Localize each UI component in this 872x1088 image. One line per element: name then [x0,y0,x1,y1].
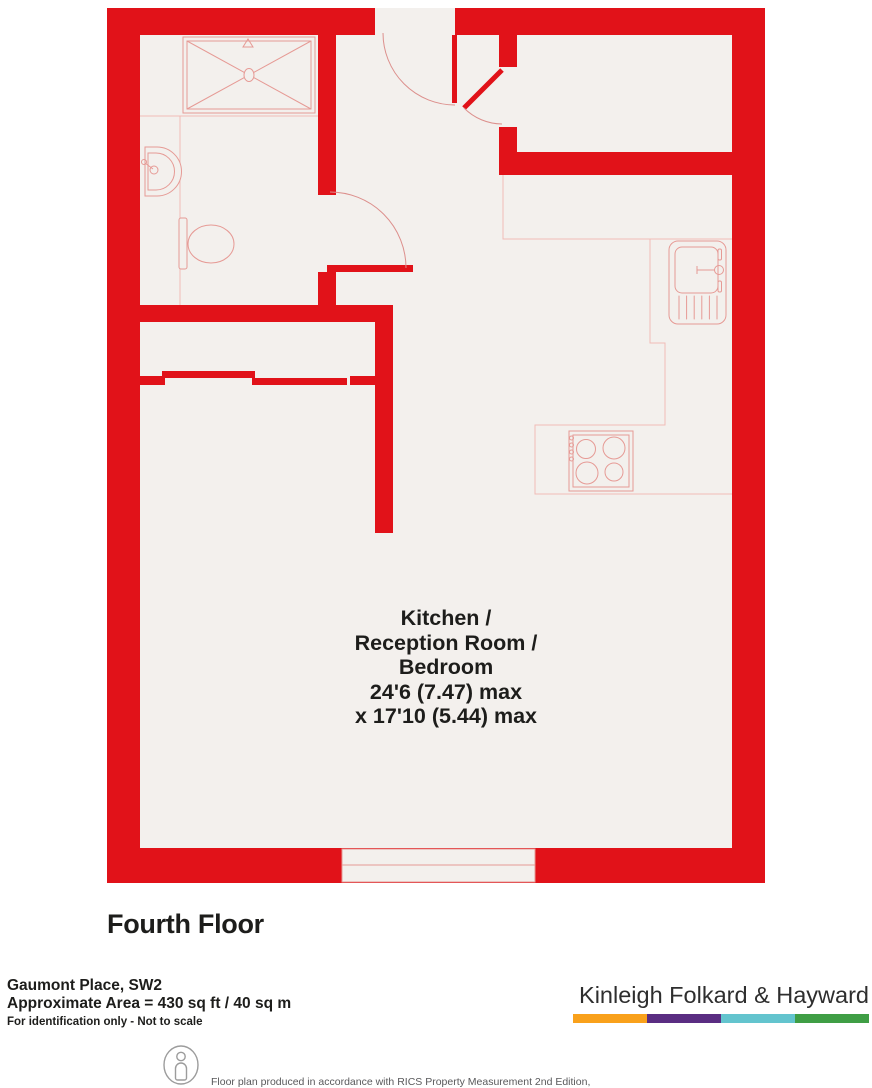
brand-bar-segment [647,1014,721,1023]
hob [569,431,633,491]
address-line: Gaumont Place, SW2 [7,977,162,995]
brand-name: Kinleigh Folkard & Hayward [559,982,869,1009]
identification-note: For identification only - Not to scale [7,1016,203,1028]
brand-bar-segment [721,1014,795,1023]
area-line: Approximate Area = 430 sq ft / 40 sq m [7,995,291,1013]
footer-line-1: Floor plan produced in accordance with R… [211,1075,686,1088]
window [342,849,535,882]
brand-bar [573,1014,869,1023]
footer-disclaimer: Floor plan produced in accordance with R… [162,1044,686,1088]
footer-text: Floor plan produced in accordance with R… [211,1044,686,1088]
floor-area [107,8,765,883]
brand-bar-segment [573,1014,647,1023]
person-in-circle-icon [162,1044,200,1086]
brand-bar-segment [795,1014,869,1023]
floor-plan [0,0,872,900]
room-label: Kitchen / Reception Room / Bedroom 24'6 … [246,606,646,729]
brand-block: Kinleigh Folkard & Hayward [559,982,869,1023]
floor-title: Fourth Floor [107,909,264,940]
